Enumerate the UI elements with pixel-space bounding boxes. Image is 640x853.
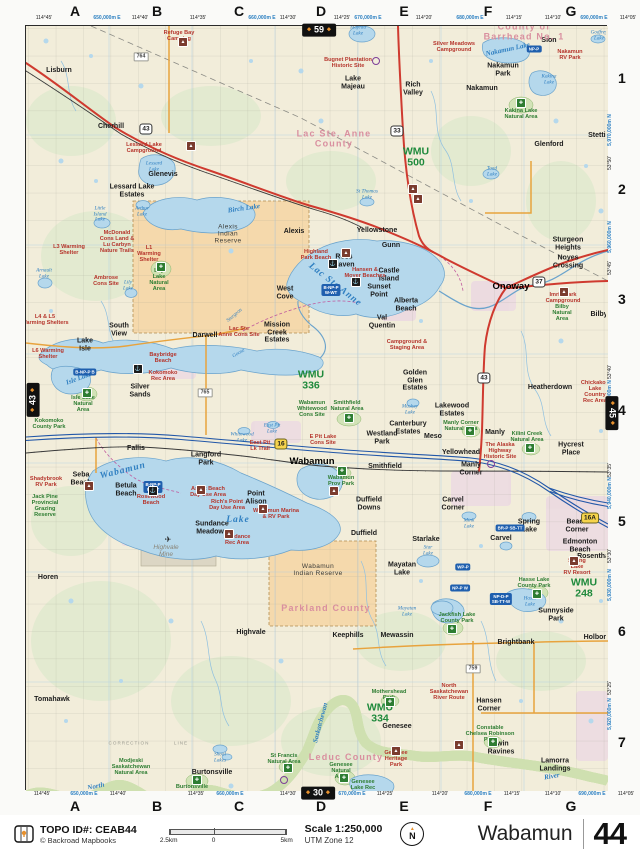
footer-title-block: Wabamun 44	[478, 816, 626, 852]
map-label: Mushey Lake	[402, 404, 418, 415]
highway-shield: 759	[466, 664, 481, 673]
poi-c-icon: ▲	[224, 529, 234, 539]
bottom-coordinate: 680,000m E	[464, 791, 491, 797]
map-label: L1 Warming Shelter	[137, 245, 161, 263]
map-label: Rosenthal	[577, 553, 606, 561]
map-label: Smithfield Natural Area	[330, 400, 363, 412]
grid-row-number: 3	[618, 291, 626, 307]
map-label: Nakamun Park	[487, 62, 519, 77]
map-label: WMU 500	[403, 147, 429, 170]
map-label: Carvel	[490, 535, 511, 543]
map-label: Alexis Indian Reserve	[214, 223, 241, 244]
highway-shield: 43	[139, 123, 152, 134]
highway-shield: 16	[274, 438, 287, 449]
map-label: Val Quentin	[369, 314, 395, 329]
map-label: Little Island Lake	[94, 207, 107, 224]
map-label: County of Barrhead No. 1	[483, 26, 565, 42]
map-label: Noyes Crossing	[553, 254, 583, 269]
map-label: Whitewood Lake	[230, 432, 253, 443]
bottom-coordinate: 670,000m E	[338, 791, 365, 797]
highway-shield: 16A	[581, 512, 599, 523]
top-coordinate: 114°15'	[506, 15, 523, 21]
map-label: Lake Isle	[77, 337, 93, 352]
map-label: East Pit Lake	[264, 423, 281, 434]
map-label: West Cove	[276, 285, 293, 300]
map-label: Sion	[541, 37, 556, 45]
map-label: Rich Valley	[403, 81, 423, 96]
poi-o-icon	[487, 460, 495, 468]
map-label: Jackfish Lake County Park	[439, 612, 476, 624]
poi-c-icon: ▲	[454, 740, 464, 750]
right-coordinate: 53°40'	[607, 365, 613, 379]
right-coordinate: 5,920,000m N	[607, 698, 613, 730]
map-name: Wabamun	[478, 822, 573, 846]
map-label: Sturgeon	[226, 308, 244, 324]
map-label: Mayatan Lake	[398, 606, 416, 617]
adjacent-map-marker: 45	[606, 396, 619, 430]
right-coordinate: 53°50'	[607, 156, 613, 170]
map-label: River	[544, 772, 561, 782]
map-label: The Alaska Highway Historic Site	[484, 442, 517, 460]
poi-h-icon: ✚	[532, 589, 542, 599]
poi-c-icon: ▲	[413, 194, 423, 204]
map-label: Yellowstone	[357, 227, 397, 235]
bottom-coordinate: 650,000m E	[70, 791, 97, 797]
bottom-coordinate: 660,000m E	[216, 791, 243, 797]
grid-row-number: 2	[618, 181, 626, 197]
poi-c-icon: ▲	[84, 481, 94, 491]
map-label: Castle Island	[378, 267, 399, 282]
map-label: Lisburn	[46, 67, 72, 75]
bottom-coordinate: 114°45'	[34, 791, 51, 797]
highway-shield: 43	[477, 372, 490, 383]
map-label: E Pit Lake Cons Site	[310, 434, 337, 446]
map-label: Smithfield	[368, 463, 402, 471]
grid-row-number: 6	[618, 623, 626, 639]
poi-c-icon: ▲	[341, 248, 351, 258]
poi-h-icon: ✚	[488, 737, 498, 747]
map-label: Heatherdown	[528, 384, 572, 392]
map-label: L6 Warming Shelter	[32, 348, 64, 360]
map-label: Hycrest Place	[558, 441, 584, 456]
highway-shield: 764	[134, 52, 149, 61]
poi-h-icon: ✚	[465, 426, 475, 436]
map-label: Highland Park Beach	[301, 249, 331, 261]
grid-column-letter: E	[399, 798, 408, 814]
adjacent-map-marker: 59	[302, 24, 336, 37]
map-label: Sunnyside Park	[538, 607, 573, 622]
grid-row-number: 7	[618, 734, 626, 750]
grid-column-letter: F	[484, 798, 493, 814]
map-label: Betula Beach	[115, 482, 136, 497]
map-label: Gunn	[382, 242, 400, 250]
bottom-coordinate: 114°05'	[618, 791, 635, 797]
map-label: Onoway	[493, 282, 530, 292]
right-coordinate: 53°25'	[607, 681, 613, 695]
right-coordinate: 5,960,000m N	[607, 221, 613, 253]
map-label: Duffield Downs	[356, 496, 382, 511]
map-label: Langford Park	[191, 451, 221, 466]
north-arrow-icon: ▲ N	[400, 822, 424, 846]
bottom-coordinate: 114°35'	[188, 791, 205, 797]
map-label: East Pit Lk Trail	[250, 440, 271, 452]
poi-c-icon: ▲	[196, 485, 206, 495]
map-label: Kakina Lake Natural Area	[504, 108, 537, 120]
map-label: Kokomoko Rec Area	[149, 370, 178, 382]
map-label: Bilby Natural Area	[552, 304, 571, 322]
poi-h-icon: ✚	[82, 388, 92, 398]
map-label: Darwell	[193, 332, 218, 340]
map-label: St Thomas Lake	[356, 189, 378, 200]
map-label: Duffield	[351, 530, 377, 538]
poi-h-icon: ✚	[344, 413, 354, 423]
map-label: Hasse Lake County Park	[518, 577, 551, 589]
rec-site-box: NP-P W	[450, 584, 470, 591]
utm-zone: UTM Zone 12	[305, 836, 383, 846]
top-coordinate: 114°10'	[545, 15, 562, 21]
scale-label-zero: 0	[212, 837, 216, 844]
map-label: Star Lake	[423, 545, 433, 556]
map-label: Birch Lake	[227, 203, 260, 215]
map-label: Lake	[226, 515, 250, 525]
scale-bar-line	[169, 829, 287, 835]
adjacent-map-marker: 43	[27, 383, 40, 417]
map-label: Horen	[38, 574, 58, 582]
right-coordinate: 53°30'	[607, 549, 613, 563]
map-label: Alberta Beach	[394, 297, 418, 312]
poi-h-icon: ✚	[447, 624, 457, 634]
top-coordinate: 650,000m E	[93, 15, 120, 21]
bottom-coordinate: 114°10'	[545, 791, 562, 797]
map-label: North	[87, 782, 105, 789]
map-labels-overlay: LisburnCherhillGlenevisLessard Lake Esta…	[26, 26, 606, 789]
bottom-coordinate: 690,000m E	[578, 791, 605, 797]
map-label: Lac Ste. Anne County	[297, 129, 372, 148]
map-label: Arnault Lake	[36, 268, 52, 279]
right-coordinate: 5,970,000m N	[607, 114, 613, 146]
map-label: CORRECTION	[109, 742, 150, 747]
map-label: Wabamun	[99, 460, 147, 481]
scale-bar-tick	[214, 828, 215, 835]
rec-site-box: WP-P	[455, 563, 470, 570]
grid-column-letter: G	[566, 798, 577, 814]
right-coordinate: 5,930,000m N	[607, 569, 613, 601]
poi-c-icon: ▲	[258, 504, 268, 514]
rec-site-box: NP-P	[527, 45, 542, 52]
grid-column-letter: B	[152, 3, 162, 19]
top-coordinate: 114°20'	[416, 15, 433, 21]
mapbook-icon	[14, 825, 34, 843]
top-coordinate: 114°45'	[36, 15, 53, 21]
map-label: Lakewood Estates	[435, 402, 469, 417]
map-label: Fallis	[127, 445, 145, 453]
map-label: LINE	[174, 742, 188, 747]
bottom-coordinate: 114°25'	[377, 791, 394, 797]
map-label: Nakamun Lake	[485, 42, 531, 59]
poi-h-icon: ✚	[339, 773, 349, 783]
scale-title: Scale 1:250,000	[305, 823, 383, 836]
right-coordinate: 5,940,000m N	[607, 477, 613, 509]
map-label: Shadybrook RV Park	[30, 476, 62, 488]
grid-column-letter: B	[152, 798, 162, 814]
highway-shield: 765	[198, 388, 213, 397]
grid-column-letter: F	[484, 3, 493, 19]
poi-h-icon: ✚	[192, 775, 202, 785]
scale-text-block: Scale 1:250,000 UTM Zone 12	[305, 823, 383, 845]
map-label: Highvale	[236, 629, 265, 637]
grid-column-letter: A	[70, 798, 80, 814]
rec-site-box: NP-D-P SB-TT-W	[490, 593, 512, 605]
map-label: WMU 248	[571, 578, 597, 601]
map-label: Sunset Point	[367, 283, 390, 298]
top-coordinate: 114°35'	[190, 15, 207, 21]
map-label: North Saskatchewan River Route	[430, 683, 469, 701]
grid-column-letter: C	[234, 798, 244, 814]
map-label: Baybridge Beach	[149, 352, 176, 364]
poi-h-icon: ✚	[525, 443, 535, 453]
poi-c-icon: ▲	[391, 746, 401, 756]
grid-column-letter: A	[70, 3, 80, 19]
mapbook-page: LisburnCherhillGlenevisLessard Lake Esta…	[0, 0, 640, 853]
map-label: Hansen Corner	[476, 697, 501, 712]
adjacent-map-marker: 30	[301, 787, 335, 800]
map-label: Kakina Lake	[542, 74, 557, 85]
map-label: Westland Park	[367, 430, 398, 445]
copyright: © Backroad Mapbooks	[40, 836, 137, 845]
map-label: Shoal Lakes	[214, 752, 226, 763]
grid-column-letter: G	[566, 3, 577, 19]
footer-bar: TOPO ID#: CEAB44 © Backroad Mapbooks 2.5…	[0, 815, 640, 853]
poi-c-icon: ▲	[559, 287, 569, 297]
poi-h-icon: ✚	[516, 98, 526, 108]
poi-b-icon: ⚓	[148, 486, 158, 496]
top-coordinate: 660,000m E	[248, 15, 275, 21]
page-number: 44	[594, 816, 626, 852]
poi-c-icon: ▲	[186, 141, 196, 151]
footer-id-block: TOPO ID#: CEAB44 © Backroad Mapbooks	[14, 824, 137, 845]
map-label: Manly	[485, 429, 505, 437]
poi-o-icon	[280, 776, 288, 784]
map-label: Goose	[232, 348, 246, 359]
scale-label-left: 2.5km	[160, 837, 178, 844]
map-label: Wabamun Indian Reserve	[293, 563, 342, 577]
map-label: Kokomoko County Park	[33, 418, 66, 430]
map-label: Genesee Lake Rec	[351, 779, 376, 789]
bottom-coordinate: 114°20'	[432, 791, 449, 797]
map-label: Genesee	[382, 723, 411, 731]
map-label: Wabamun Whitewood Cons Site	[297, 400, 327, 418]
map-label: Toad Lake	[487, 166, 497, 177]
map-label: Saskatchewan	[312, 702, 330, 744]
map-label: Bilby	[590, 311, 606, 319]
rec-site-box: B-NP-P B	[73, 368, 96, 375]
map-label: Wabamun	[289, 457, 334, 467]
top-coordinate: 680,000m E	[456, 15, 483, 21]
map-label: Kilini Creek Natural Area	[510, 431, 543, 443]
map-label: Lake Majeau	[341, 75, 365, 90]
map-label: Mewassin	[380, 632, 413, 640]
map-label: Highvale Mine	[153, 544, 178, 558]
map-label: Rich's Point Day Use Area	[209, 499, 245, 511]
map-label: Alexis	[284, 228, 305, 236]
poi-h-icon: ✚	[156, 262, 166, 272]
map-label: Golden Glen Estates	[403, 370, 428, 393]
poi-c-icon: ▲	[329, 486, 339, 496]
map-label: Godfrey Lake	[591, 30, 606, 41]
poi-h-icon: ✚	[283, 763, 293, 773]
grid-row-number: 4	[618, 402, 626, 418]
map-label: South View	[109, 322, 129, 337]
map-label: Glenevis	[148, 171, 177, 179]
map-label: Starlake	[412, 536, 439, 544]
grid-row-number: 5	[618, 513, 626, 529]
map-label: Keephills	[332, 632, 363, 640]
top-coordinate: 114°25'	[334, 15, 351, 21]
poi-c-icon: ▲	[178, 37, 188, 47]
map-area[interactable]: LisburnCherhillGlenevisLessard Lake Esta…	[25, 25, 607, 790]
grid-column-letter: C	[234, 3, 244, 19]
footer-divider	[583, 819, 584, 849]
map-label: Cherhill	[98, 123, 124, 131]
map-label: Bugnet Plantation Historic Site	[324, 57, 372, 69]
map-label: Modjeski Saskatchewan Natural Area	[112, 758, 151, 776]
map-label: Parkland County	[281, 604, 371, 614]
map-label: Majeau Lake	[350, 26, 366, 37]
bottom-coordinate: 114°30'	[280, 791, 297, 797]
map-label: Mission Creek Estates	[264, 322, 290, 345]
poi-o-icon	[372, 57, 380, 65]
map-label: Brightbank	[498, 639, 535, 647]
map-label: Edmonton Beach	[563, 538, 598, 553]
map-label: Silver Sands	[129, 383, 150, 398]
poi-h-icon: ✚	[385, 697, 395, 707]
map-label: Stettin	[588, 132, 606, 140]
map-label: Chickakoo Lake Country Rec Area	[581, 380, 606, 404]
map-label: Mink Lake	[464, 518, 475, 529]
map-label: L3 Warming Shelter	[53, 244, 85, 256]
map-label: Nakamun	[466, 85, 498, 93]
poi-b-icon: ⚓	[133, 364, 143, 374]
highway-shield: 33	[390, 125, 403, 136]
poi-b-icon: ⚓	[351, 277, 361, 287]
rec-site-box: BR-P SB-TT	[496, 524, 525, 531]
map-label: Carvel Corner	[442, 496, 465, 511]
topo-id: TOPO ID#: CEAB44	[40, 824, 137, 836]
top-coordinate: 114°40'	[132, 15, 149, 21]
map-label: Arthur Lake	[135, 206, 149, 217]
map-label: Lessard Lake Campground	[126, 142, 162, 154]
map-label: Canterbury Estates	[389, 420, 426, 435]
map-label: Leduc County	[309, 753, 383, 763]
right-coordinate: 53°35'	[607, 463, 613, 477]
map-label: Silver Meadows Campground	[433, 41, 475, 53]
map-label: Holborn	[584, 634, 606, 642]
highway-shield: 37	[532, 276, 545, 287]
poi-h-icon: ✚	[337, 466, 347, 476]
top-coordinate: 114°05'	[620, 15, 637, 21]
map-label: WMU 336	[298, 370, 324, 393]
grid-column-letter: D	[316, 3, 326, 19]
map-label: Mayatan Lake	[388, 561, 416, 576]
map-label: McDonald Cons Land & Lu Carbyn Nature Tr…	[100, 230, 135, 254]
rec-site-box: B-NP-P W-WT	[321, 284, 340, 296]
poi-b-icon: ⚓	[328, 259, 338, 269]
map-label: Jack Pine Provincial Grazing Reserve	[32, 494, 59, 518]
map-label: Ambrose Cons Site	[93, 275, 119, 287]
map-label: Meso	[424, 433, 442, 441]
scale-label-right: 5km	[281, 837, 293, 844]
north-label: N	[409, 831, 416, 841]
top-coordinate: 670,000m E	[354, 15, 381, 21]
scale-bar: 2.5km 0 5km	[169, 825, 287, 843]
map-label: Lac Ste Anne Cons Site	[218, 326, 259, 338]
map-label: Tomahawk	[34, 696, 70, 704]
map-label: Nakamun RV Park	[557, 49, 582, 61]
map-label: Sturgeon Heights	[553, 236, 584, 251]
right-coordinate: 53°45'	[607, 261, 613, 275]
map-label: Campground & Staging Area	[387, 339, 427, 351]
map-label: L4 & L5 Warming Shelters	[26, 314, 69, 326]
bottom-coordinate: 114°15'	[504, 791, 521, 797]
top-coordinate: 690,000m E	[580, 15, 607, 21]
poi-c-icon: ▲	[569, 556, 579, 566]
grid-row-number: 1	[618, 70, 626, 86]
grid-column-letter: D	[316, 798, 326, 814]
poi-c-icon: ▲	[408, 184, 418, 194]
map-label: Lessard Lake	[146, 161, 162, 172]
map-label: Manly Corner	[460, 461, 483, 476]
map-label: Lessard Lake Estates	[110, 183, 155, 198]
map-label: Lamorra Landings	[539, 757, 570, 772]
bottom-coordinate: 114°40'	[110, 791, 127, 797]
poi-a-icon: ✈	[164, 535, 172, 543]
map-label: Yellowhead	[442, 449, 480, 457]
map-label: Lily Lake	[123, 280, 133, 291]
grid-column-letter: E	[399, 3, 408, 19]
top-coordinate: 114°30'	[280, 15, 297, 21]
map-label: Glenford	[534, 141, 563, 149]
